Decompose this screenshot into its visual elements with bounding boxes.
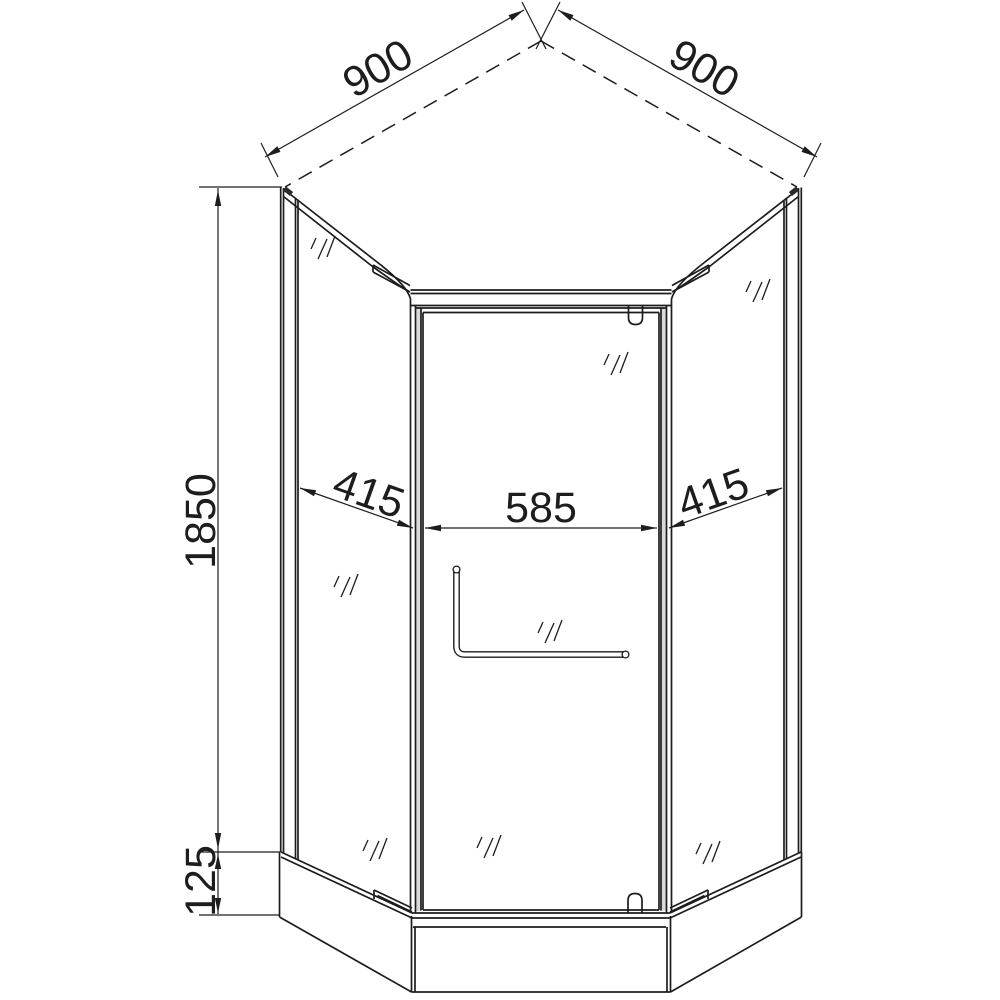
dim-label-left-panel: 415 bbox=[327, 459, 411, 528]
glass-hatch-icon bbox=[696, 841, 720, 864]
right-fixed-panel bbox=[670, 187, 801, 914]
dimension-top-left-900: 900 bbox=[261, 2, 546, 177]
dimension-tray-125: 125 bbox=[177, 845, 225, 917]
dimension-height-1850: 1850 bbox=[177, 187, 282, 915]
dimension-door-585: 585 bbox=[425, 484, 657, 532]
towel-bar-handle bbox=[453, 566, 629, 658]
dimension-top-right-900: 900 bbox=[536, 2, 821, 177]
glass-hatch-icon bbox=[538, 620, 562, 643]
dim-label-top-left: 900 bbox=[335, 30, 421, 108]
left-top-rail bbox=[284, 189, 411, 913]
dim-label-height: 1850 bbox=[177, 473, 225, 569]
dim-label-top-right: 900 bbox=[661, 30, 747, 108]
shower-tray bbox=[280, 852, 802, 992]
dim-label-right-panel: 415 bbox=[671, 459, 755, 528]
glass-hatch-icon bbox=[477, 835, 501, 858]
glass-hatch-icon bbox=[334, 574, 358, 597]
drawing-svg: 900 900 1850 125 415 585 bbox=[0, 0, 1000, 1000]
glass-hatch-icon bbox=[604, 352, 628, 375]
left-fixed-panel bbox=[281, 187, 412, 914]
dimension-right-panel-415: 415 bbox=[669, 459, 782, 528]
glass-hatch-icon bbox=[746, 279, 770, 302]
glass-hatch-marks bbox=[311, 236, 770, 864]
dimension-left-panel-415: 415 bbox=[300, 459, 413, 528]
right-top-rail bbox=[672, 189, 799, 913]
shower-enclosure-technical-drawing: 900 900 1850 125 415 585 bbox=[0, 0, 1000, 1000]
door-panel bbox=[411, 290, 672, 913]
glass-hatch-icon bbox=[363, 838, 387, 861]
glass-hatch-icon bbox=[311, 236, 335, 259]
dim-label-tray-height: 125 bbox=[177, 845, 225, 917]
dim-label-door: 585 bbox=[505, 484, 577, 532]
